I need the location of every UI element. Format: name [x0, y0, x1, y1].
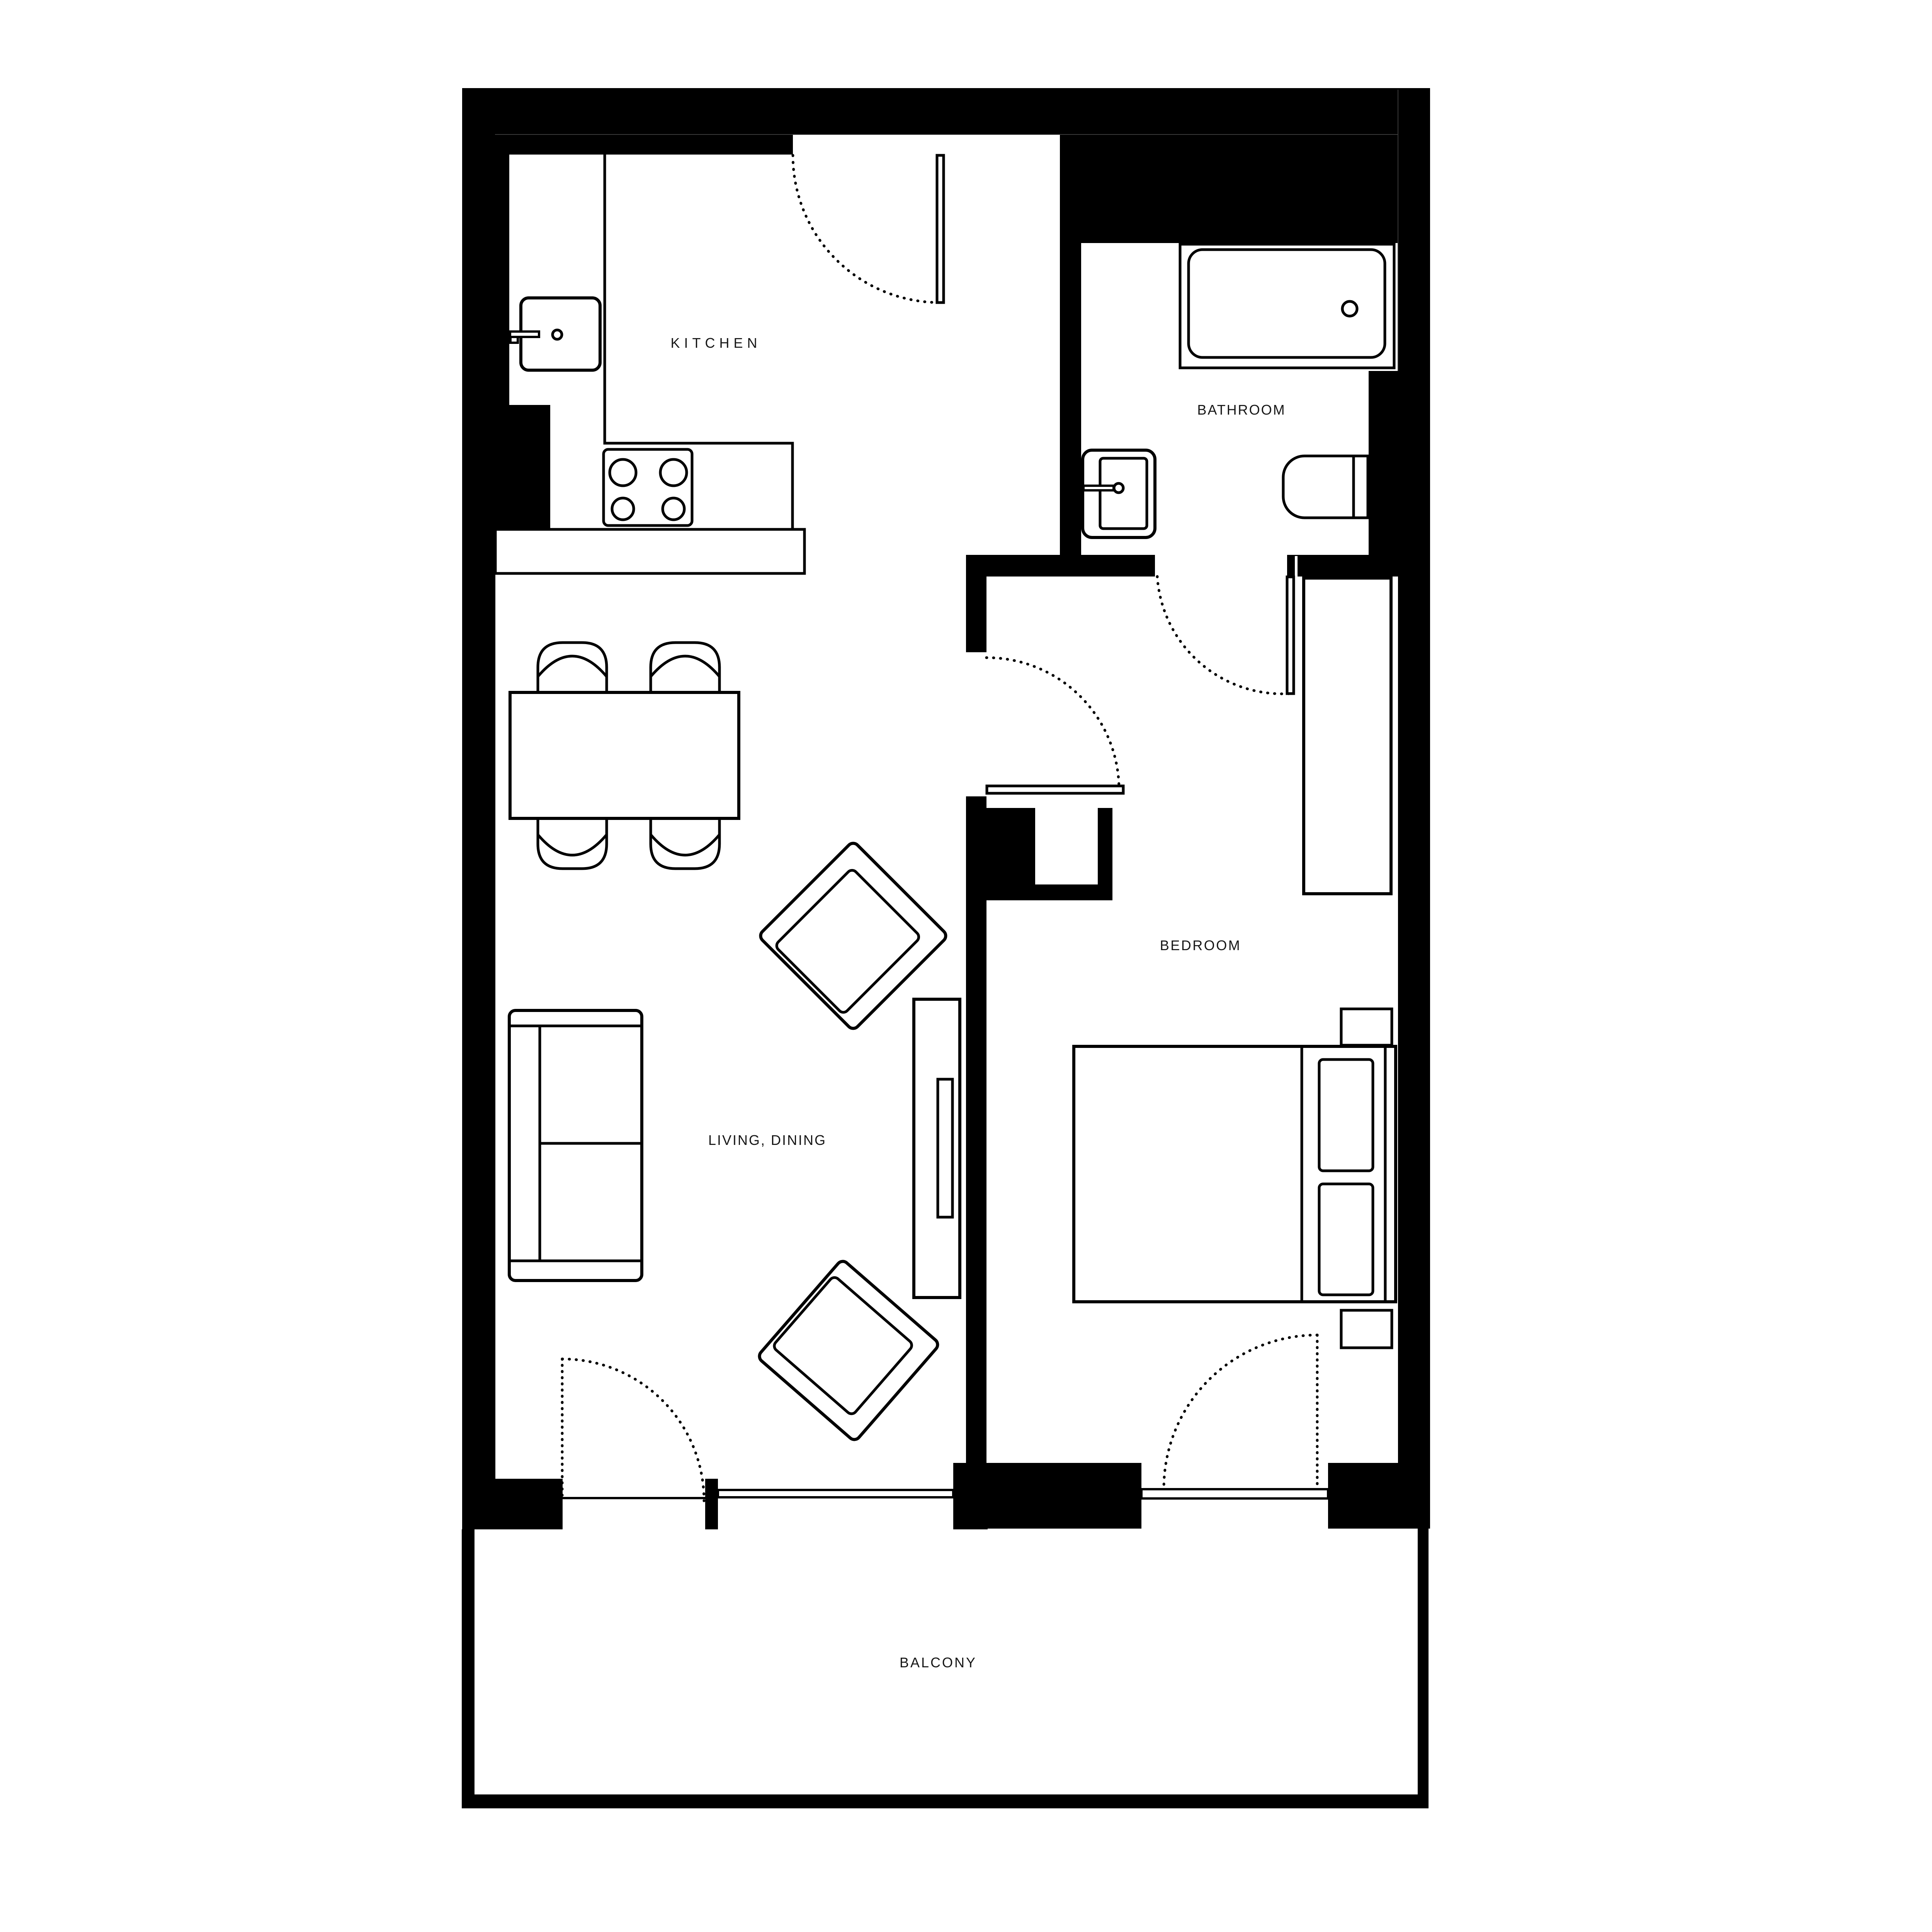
svg-text:LIVING, DINING: LIVING, DINING: [708, 1132, 827, 1148]
svg-text:KITCHEN: KITCHEN: [670, 335, 761, 351]
svg-text:BEDROOM: BEDROOM: [1160, 937, 1242, 953]
svg-text:BATHROOM: BATHROOM: [1197, 402, 1286, 418]
svg-text:BALCONY: BALCONY: [900, 1655, 977, 1670]
